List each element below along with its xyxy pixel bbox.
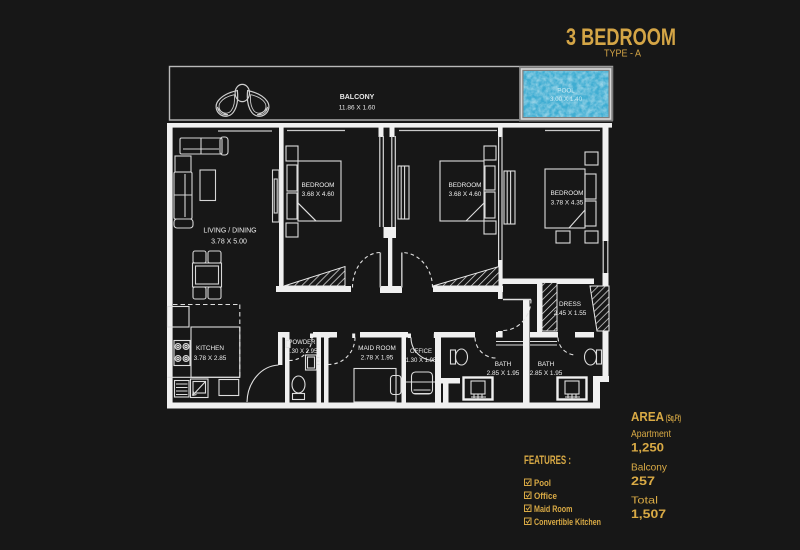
svg-text:1,250: 1,250 [631, 441, 664, 455]
svg-text:LIVING / DINING: LIVING / DINING [203, 228, 256, 235]
svg-text:BEDROOM: BEDROOM [550, 190, 583, 197]
svg-text:2.85 X 1.95: 2.85 X 1.95 [530, 370, 563, 377]
svg-text:3.78 X 5.00: 3.78 X 5.00 [211, 239, 247, 246]
svg-text:BEDROOM: BEDROOM [301, 182, 334, 189]
svg-text:Maid Room: Maid Room [534, 504, 573, 515]
svg-text:1,507: 1,507 [631, 507, 666, 521]
svg-text:Convertible Kitchen: Convertible Kitchen [534, 517, 601, 528]
svg-text:POOL: POOL [557, 88, 575, 95]
svg-text:Total: Total [631, 495, 658, 507]
svg-text:DRESS: DRESS [559, 301, 581, 308]
svg-text:BEDROOM: BEDROOM [448, 182, 481, 189]
svg-text:FEATURES :: FEATURES : [524, 455, 571, 467]
svg-text:Pool: Pool [534, 478, 551, 489]
svg-text:BATH: BATH [538, 361, 555, 368]
svg-text:3.00 X 1.40: 3.00 X 1.40 [550, 96, 583, 103]
svg-text:AREA: AREA [631, 409, 665, 424]
svg-text:KITCHEN: KITCHEN [196, 345, 224, 352]
svg-text:2.85 X 1.95: 2.85 X 1.95 [487, 370, 520, 377]
svg-text:1.30 X 2.95: 1.30 X 2.95 [287, 349, 318, 355]
svg-text:BALCONY: BALCONY [340, 94, 375, 101]
svg-text:2.78 X 1.95: 2.78 X 1.95 [361, 355, 394, 362]
svg-text:3.68 X 4.60: 3.68 X 4.60 [302, 191, 335, 198]
svg-text:TYPE - A: TYPE - A [604, 48, 641, 60]
svg-text:(Sq.Ft): (Sq.Ft) [666, 413, 681, 423]
svg-text:3.78 X 4.35: 3.78 X 4.35 [551, 200, 584, 207]
svg-text:2.45 X 1.55: 2.45 X 1.55 [554, 310, 587, 317]
svg-text:257: 257 [631, 474, 655, 488]
svg-text:3.78 X 2.85: 3.78 X 2.85 [194, 355, 227, 362]
svg-text:1.30 X 1.95: 1.30 X 1.95 [406, 358, 437, 364]
svg-text:Apartment: Apartment [631, 428, 671, 440]
svg-text:POWDER: POWDER [289, 340, 317, 346]
svg-text:11.86 X 1.60: 11.86 X 1.60 [339, 105, 376, 112]
svg-text:3.68 X 4.60: 3.68 X 4.60 [449, 191, 482, 198]
svg-text:Balcony: Balcony [631, 462, 668, 474]
svg-text:MAID ROOM: MAID ROOM [358, 345, 396, 352]
svg-text:OFFICE: OFFICE [410, 349, 432, 355]
svg-text:Office: Office [534, 491, 557, 502]
svg-text:BATH: BATH [495, 361, 512, 368]
